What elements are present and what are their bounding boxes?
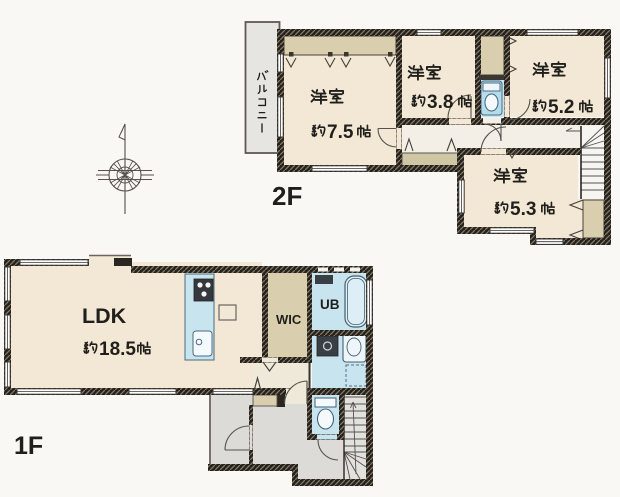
svg-text:3.8: 3.8 xyxy=(427,92,453,113)
svg-text:5.2: 5.2 xyxy=(548,97,574,118)
svg-text:1F: 1F xyxy=(14,432,43,460)
svg-text:WIC: WIC xyxy=(276,312,302,327)
svg-text:2F: 2F xyxy=(272,181,302,211)
svg-text:LDK: LDK xyxy=(82,304,127,328)
svg-text:18.5: 18.5 xyxy=(99,339,136,360)
svg-text:5.3: 5.3 xyxy=(510,199,536,220)
svg-text:7.5: 7.5 xyxy=(327,122,354,143)
svg-text:UB: UB xyxy=(320,297,340,312)
